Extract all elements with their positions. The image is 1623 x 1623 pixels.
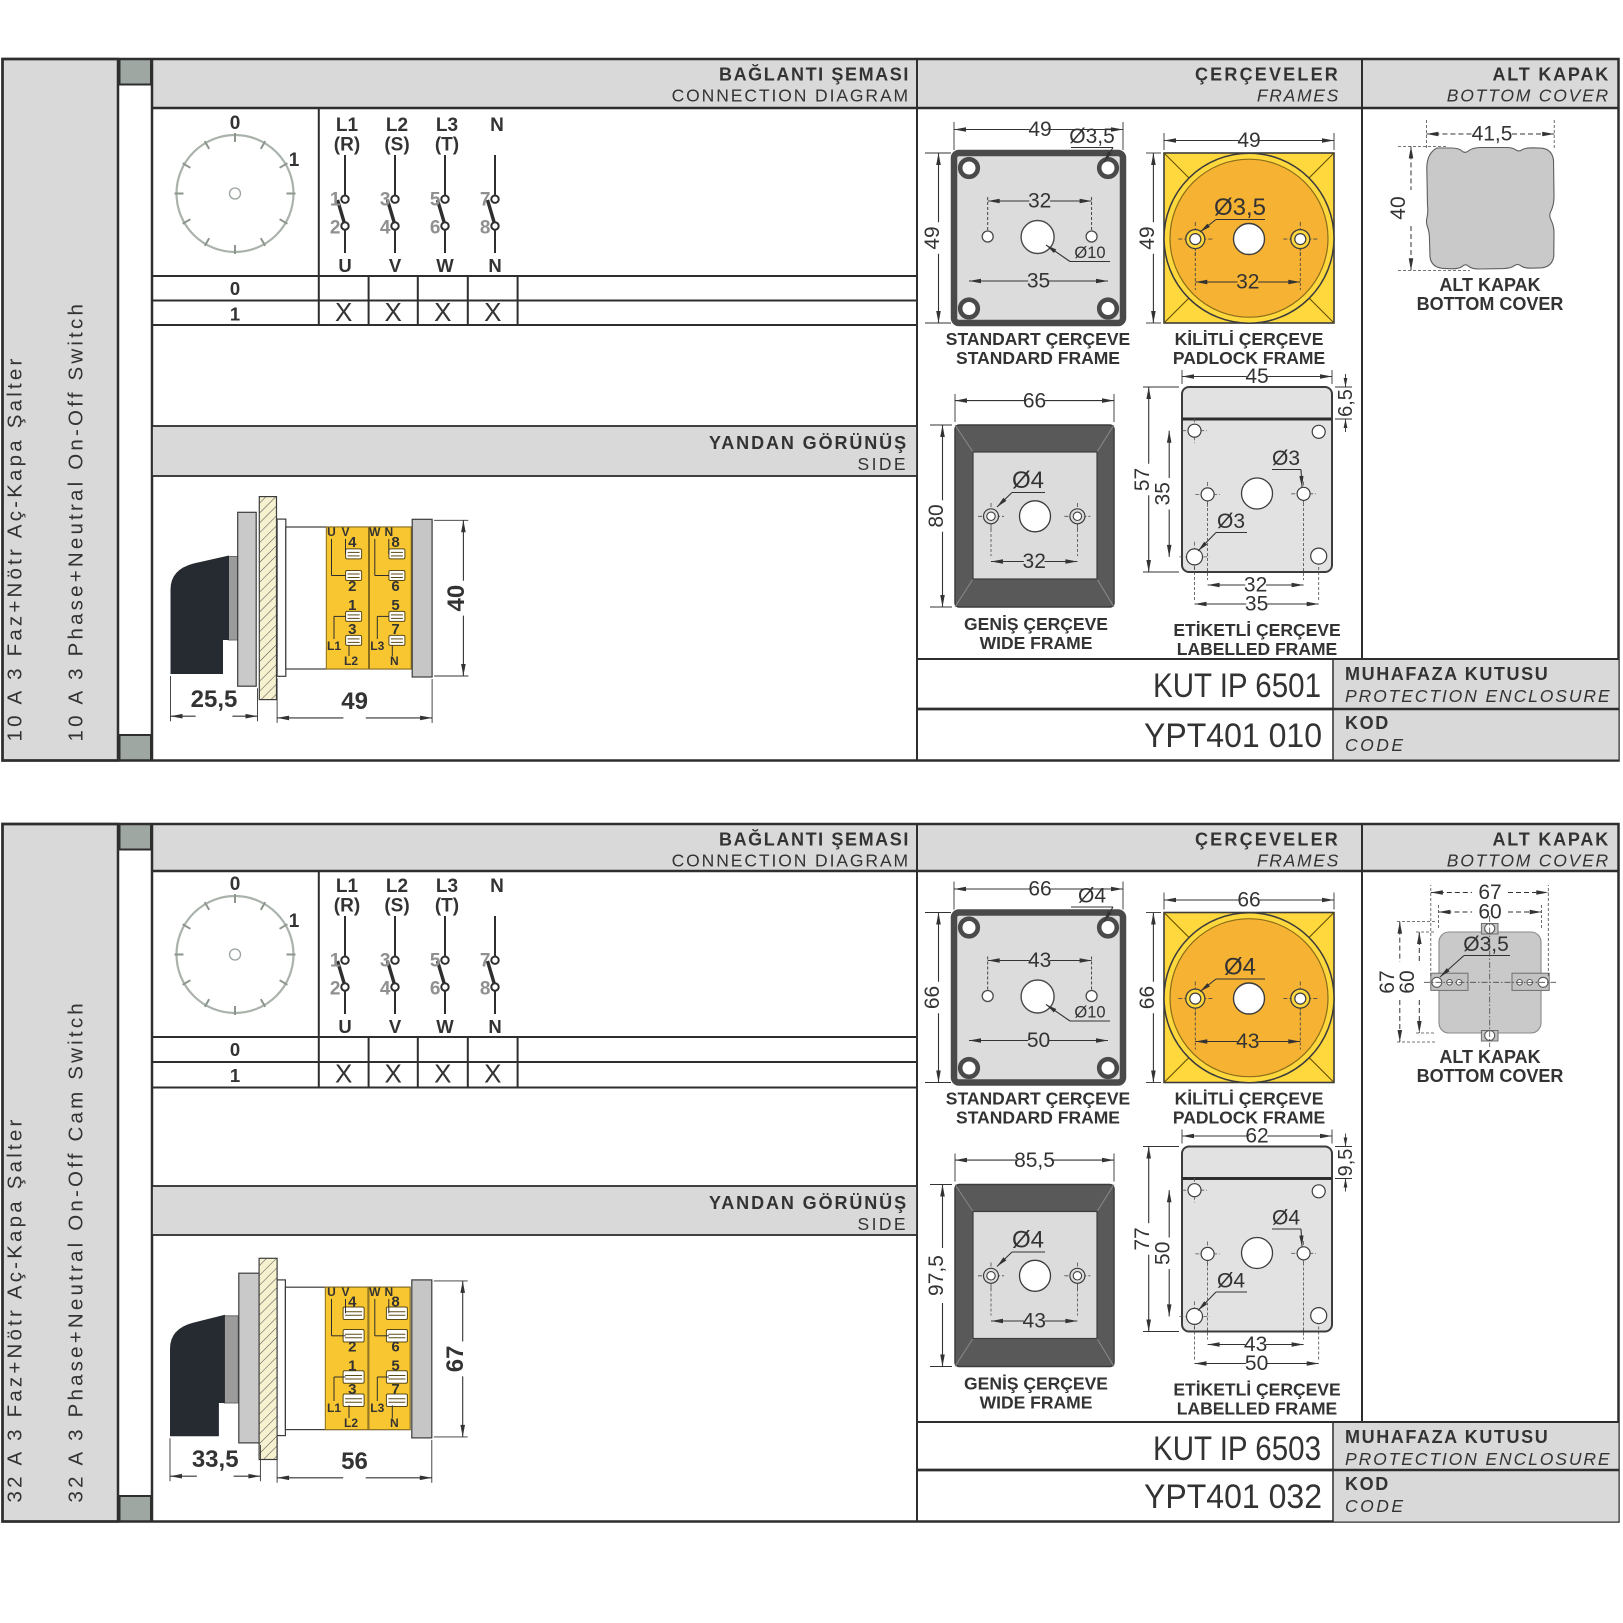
svg-text:32: 32 <box>1236 271 1259 294</box>
svg-text:ALT KAPAK: ALT KAPAK <box>1439 275 1540 295</box>
svg-text:10 A 3 Faz+Nötr Aç-Kapa Şalter: 10 A 3 Faz+Nötr Aç-Kapa Şalter <box>4 355 27 741</box>
svg-text:L2: L2 <box>344 654 358 668</box>
svg-text:STANDART ÇERÇEVE: STANDART ÇERÇEVE <box>946 329 1130 349</box>
svg-text:49: 49 <box>1237 129 1260 152</box>
svg-text:KOD: KOD <box>1345 1474 1390 1494</box>
svg-text:SIDE: SIDE <box>858 454 908 474</box>
svg-text:43: 43 <box>1028 949 1051 972</box>
svg-text:W: W <box>369 1285 381 1299</box>
svg-text:YANDAN GÖRÜNÜŞ: YANDAN GÖRÜNÜŞ <box>709 433 908 453</box>
svg-text:0: 0 <box>230 113 241 134</box>
svg-text:L1: L1 <box>336 115 359 136</box>
svg-text:L3: L3 <box>370 1401 384 1415</box>
svg-text:ETİKETLİ ÇERÇEVE: ETİKETLİ ÇERÇEVE <box>1173 620 1340 640</box>
svg-text:FRAMES: FRAMES <box>1257 86 1340 106</box>
svg-text:1: 1 <box>289 150 300 171</box>
svg-text:8: 8 <box>480 979 491 1000</box>
svg-text:L1: L1 <box>336 876 359 897</box>
svg-text:WIDE FRAME: WIDE FRAME <box>980 633 1093 653</box>
svg-text:STANDARD FRAME: STANDARD FRAME <box>956 1108 1120 1128</box>
svg-text:FRAMES: FRAMES <box>1257 851 1340 871</box>
svg-text:V: V <box>389 1016 402 1037</box>
svg-text:X: X <box>385 1059 402 1089</box>
svg-text:1: 1 <box>230 1065 240 1086</box>
svg-text:67: 67 <box>442 1346 469 1373</box>
svg-text:X: X <box>484 1059 501 1089</box>
svg-text:N: N <box>488 255 501 276</box>
svg-text:60: 60 <box>1478 901 1501 924</box>
svg-text:W: W <box>436 255 454 276</box>
svg-text:YANDAN GÖRÜNÜŞ: YANDAN GÖRÜNÜŞ <box>709 1193 908 1213</box>
svg-text:32 A 3 Faz+Nötr Aç-Kapa Şalter: 32 A 3 Faz+Nötr Aç-Kapa Şalter <box>4 1116 27 1502</box>
svg-text:40: 40 <box>1387 196 1410 219</box>
svg-text:Ø4: Ø4 <box>1272 1207 1300 1230</box>
svg-text:V: V <box>341 525 349 539</box>
svg-text:2: 2 <box>348 1339 356 1356</box>
svg-text:STANDARD FRAME: STANDARD FRAME <box>956 348 1120 368</box>
svg-text:62: 62 <box>1245 1125 1268 1148</box>
svg-text:40: 40 <box>443 585 470 612</box>
svg-text:BAĞLANTI ŞEMASI: BAĞLANTI ŞEMASI <box>719 64 910 85</box>
svg-text:49: 49 <box>341 688 368 715</box>
svg-text:2: 2 <box>330 218 341 239</box>
svg-text:Ø4: Ø4 <box>1012 1227 1044 1254</box>
svg-text:L2: L2 <box>344 1416 358 1430</box>
svg-text:66: 66 <box>1136 986 1159 1009</box>
svg-text:ALT KAPAK: ALT KAPAK <box>1439 1047 1540 1067</box>
svg-text:X: X <box>335 297 352 327</box>
svg-text:WIDE FRAME: WIDE FRAME <box>980 1393 1093 1413</box>
svg-text:KUT IP 6501: KUT IP 6501 <box>1153 667 1321 705</box>
svg-text:U: U <box>327 525 336 539</box>
svg-text:7: 7 <box>391 1381 399 1398</box>
svg-text:6: 6 <box>430 979 441 1000</box>
svg-text:GENİŞ ÇERÇEVE: GENİŞ ÇERÇEVE <box>964 614 1108 634</box>
svg-text:KİLİTLİ ÇERÇEVE: KİLİTLİ ÇERÇEVE <box>1175 329 1324 349</box>
svg-text:LABELLED FRAME: LABELLED FRAME <box>1177 639 1337 659</box>
svg-text:N: N <box>490 876 504 897</box>
svg-text:PROTECTION ENCLOSURE: PROTECTION ENCLOSURE <box>1345 1449 1612 1469</box>
svg-text:0: 0 <box>230 278 240 299</box>
svg-text:97,5: 97,5 <box>925 1255 948 1296</box>
svg-text:L3: L3 <box>436 115 458 136</box>
svg-text:8: 8 <box>480 218 491 239</box>
svg-text:X: X <box>434 1059 451 1089</box>
svg-text:25,5: 25,5 <box>191 686 238 713</box>
svg-text:PROTECTION ENCLOSURE: PROTECTION ENCLOSURE <box>1345 686 1612 706</box>
svg-text:(T): (T) <box>435 135 459 156</box>
svg-text:60: 60 <box>1396 970 1419 993</box>
svg-text:32: 32 <box>1028 190 1051 213</box>
svg-text:1: 1 <box>348 597 356 614</box>
svg-text:(S): (S) <box>384 135 409 156</box>
svg-text:MUHAFAZA KUTUSU: MUHAFAZA KUTUSU <box>1345 664 1549 684</box>
svg-text:SIDE: SIDE <box>858 1214 908 1234</box>
svg-text:35: 35 <box>1027 270 1050 293</box>
svg-text:3: 3 <box>348 1381 356 1398</box>
svg-text:X: X <box>335 1059 352 1089</box>
svg-text:Ø10: Ø10 <box>1074 1004 1105 1022</box>
svg-text:(R): (R) <box>334 135 360 156</box>
svg-text:0: 0 <box>230 1039 240 1060</box>
svg-text:N: N <box>390 654 399 668</box>
svg-text:ALT KAPAK: ALT KAPAK <box>1492 65 1610 85</box>
svg-text:50: 50 <box>1152 1242 1175 1265</box>
svg-text:7: 7 <box>391 621 399 638</box>
svg-text:1: 1 <box>330 190 341 211</box>
svg-text:85,5: 85,5 <box>1014 1149 1055 1172</box>
svg-text:GENİŞ ÇERÇEVE: GENİŞ ÇERÇEVE <box>964 1374 1108 1394</box>
svg-text:5: 5 <box>391 597 399 614</box>
svg-text:LABELLED FRAME: LABELLED FRAME <box>1177 1399 1337 1419</box>
svg-text:1: 1 <box>289 911 300 932</box>
svg-text:Ø3,5: Ø3,5 <box>1214 194 1266 221</box>
svg-text:Ø3,5: Ø3,5 <box>1069 125 1115 148</box>
svg-text:L1: L1 <box>327 1401 341 1415</box>
svg-text:5: 5 <box>391 1358 399 1375</box>
svg-text:3: 3 <box>380 190 391 211</box>
svg-text:35: 35 <box>1245 593 1268 616</box>
svg-text:4: 4 <box>380 218 391 239</box>
svg-text:2: 2 <box>348 578 356 595</box>
svg-text:43: 43 <box>1023 1310 1046 1333</box>
svg-text:KOD: KOD <box>1345 713 1390 733</box>
svg-text:50: 50 <box>1245 1352 1268 1375</box>
svg-text:YPT401 032: YPT401 032 <box>1144 1478 1322 1516</box>
svg-text:Ø4: Ø4 <box>1224 954 1256 981</box>
svg-text:ÇERÇEVELER: ÇERÇEVELER <box>1195 65 1340 85</box>
svg-text:X: X <box>434 297 451 327</box>
svg-text:2: 2 <box>330 979 341 1000</box>
svg-text:7: 7 <box>480 190 491 211</box>
svg-text:L2: L2 <box>386 115 408 136</box>
svg-text:3: 3 <box>348 621 356 638</box>
svg-text:V: V <box>389 255 402 276</box>
svg-text:45: 45 <box>1245 365 1268 388</box>
svg-text:ETİKETLİ ÇERÇEVE: ETİKETLİ ÇERÇEVE <box>1173 1380 1340 1400</box>
svg-text:33,5: 33,5 <box>192 1446 239 1473</box>
svg-text:YPT401 010: YPT401 010 <box>1144 717 1322 755</box>
svg-text:41,5: 41,5 <box>1472 123 1513 146</box>
svg-text:Ø3: Ø3 <box>1217 510 1245 533</box>
svg-text:50: 50 <box>1027 1029 1050 1052</box>
svg-text:U: U <box>338 255 351 276</box>
svg-text:66: 66 <box>1237 889 1260 912</box>
svg-text:(S): (S) <box>384 896 409 917</box>
svg-text:Ø3: Ø3 <box>1272 447 1300 470</box>
svg-text:U: U <box>327 1285 336 1299</box>
svg-text:ÇERÇEVELER: ÇERÇEVELER <box>1195 830 1340 850</box>
svg-text:Ø4: Ø4 <box>1012 467 1044 494</box>
svg-text:5: 5 <box>430 951 441 972</box>
svg-text:KİLİTLİ ÇERÇEVE: KİLİTLİ ÇERÇEVE <box>1175 1089 1324 1109</box>
svg-text:STANDART ÇERÇEVE: STANDART ÇERÇEVE <box>946 1089 1130 1109</box>
svg-text:BOTTOM COVER: BOTTOM COVER <box>1447 86 1610 106</box>
svg-text:32 A 3 Phase+Neutral On-Off Ca: 32 A 3 Phase+Neutral On-Off Cam Switch <box>65 1000 88 1502</box>
svg-text:Ø3,5: Ø3,5 <box>1463 933 1509 956</box>
svg-text:V: V <box>341 1285 349 1299</box>
svg-text:L3: L3 <box>370 639 384 653</box>
svg-text:4: 4 <box>380 979 391 1000</box>
svg-text:Ø10: Ø10 <box>1074 244 1105 262</box>
svg-text:49: 49 <box>1136 226 1159 249</box>
svg-text:80: 80 <box>925 504 948 527</box>
svg-text:35: 35 <box>1152 482 1175 505</box>
svg-text:6: 6 <box>391 578 399 595</box>
svg-text:(R): (R) <box>334 896 360 917</box>
svg-text:3: 3 <box>380 951 391 972</box>
svg-text:BOTTOM COVER: BOTTOM COVER <box>1447 851 1610 871</box>
svg-text:N: N <box>384 1285 393 1299</box>
svg-text:6: 6 <box>391 1339 399 1356</box>
svg-text:49: 49 <box>1028 118 1051 141</box>
svg-text:N: N <box>490 115 504 136</box>
svg-text:CONNECTION DIAGRAM: CONNECTION DIAGRAM <box>672 851 910 871</box>
svg-text:1: 1 <box>348 1358 356 1375</box>
svg-text:N: N <box>488 1016 501 1037</box>
svg-text:L1: L1 <box>327 639 341 653</box>
svg-text:BOTTOM COVER: BOTTOM COVER <box>1417 1066 1564 1086</box>
svg-text:W: W <box>369 525 381 539</box>
svg-text:6,5: 6,5 <box>1335 389 1357 417</box>
svg-text:MUHAFAZA KUTUSU: MUHAFAZA KUTUSU <box>1345 1427 1549 1447</box>
svg-text:N: N <box>384 525 393 539</box>
svg-text:U: U <box>338 1016 351 1037</box>
svg-text:(T): (T) <box>435 896 459 917</box>
svg-text:5: 5 <box>430 190 441 211</box>
svg-text:W: W <box>436 1016 454 1037</box>
svg-text:Ø4: Ø4 <box>1217 1270 1245 1293</box>
svg-text:49: 49 <box>921 226 944 249</box>
svg-text:Ø4: Ø4 <box>1078 885 1106 908</box>
svg-text:X: X <box>484 297 501 327</box>
svg-text:KUT IP 6503: KUT IP 6503 <box>1153 1430 1321 1468</box>
svg-text:0: 0 <box>230 874 241 895</box>
svg-text:56: 56 <box>341 1448 368 1475</box>
svg-text:66: 66 <box>1023 389 1046 412</box>
svg-text:BAĞLANTI ŞEMASI: BAĞLANTI ŞEMASI <box>719 829 910 850</box>
svg-text:N: N <box>390 1416 399 1430</box>
svg-text:43: 43 <box>1236 1030 1259 1053</box>
svg-text:32: 32 <box>1023 550 1046 573</box>
svg-text:9,5: 9,5 <box>1335 1149 1357 1177</box>
svg-text:10 A 3 Phase+Neutral On-Off Sw: 10 A 3 Phase+Neutral On-Off Switch <box>65 301 88 742</box>
svg-text:CODE: CODE <box>1345 735 1406 755</box>
svg-text:X: X <box>385 297 402 327</box>
svg-text:CONNECTION DIAGRAM: CONNECTION DIAGRAM <box>672 86 910 106</box>
svg-text:L3: L3 <box>436 876 458 897</box>
svg-text:66: 66 <box>921 986 944 1009</box>
svg-text:6: 6 <box>430 218 441 239</box>
svg-text:1: 1 <box>330 951 341 972</box>
svg-text:BOTTOM COVER: BOTTOM COVER <box>1417 294 1564 314</box>
svg-text:L2: L2 <box>386 876 408 897</box>
svg-text:1: 1 <box>230 304 240 325</box>
svg-text:CODE: CODE <box>1345 1496 1406 1516</box>
svg-text:66: 66 <box>1028 878 1051 901</box>
svg-text:7: 7 <box>480 951 491 972</box>
svg-text:ALT KAPAK: ALT KAPAK <box>1492 830 1610 850</box>
